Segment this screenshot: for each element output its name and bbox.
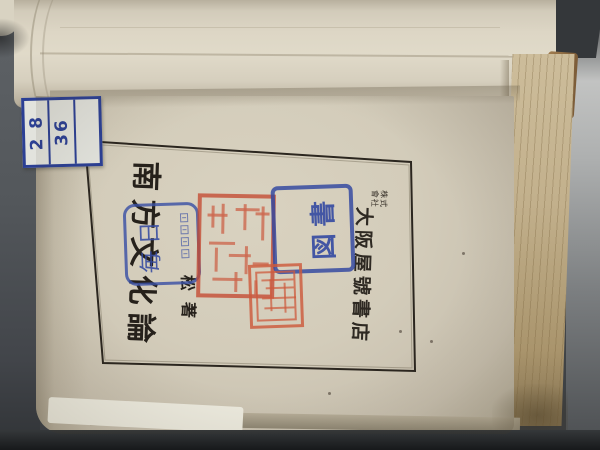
photo-vignette [36,96,514,434]
book-photograph: 南方文化論 松 著 株式 會社 大阪屋號書店 毎日 [0,0,600,450]
